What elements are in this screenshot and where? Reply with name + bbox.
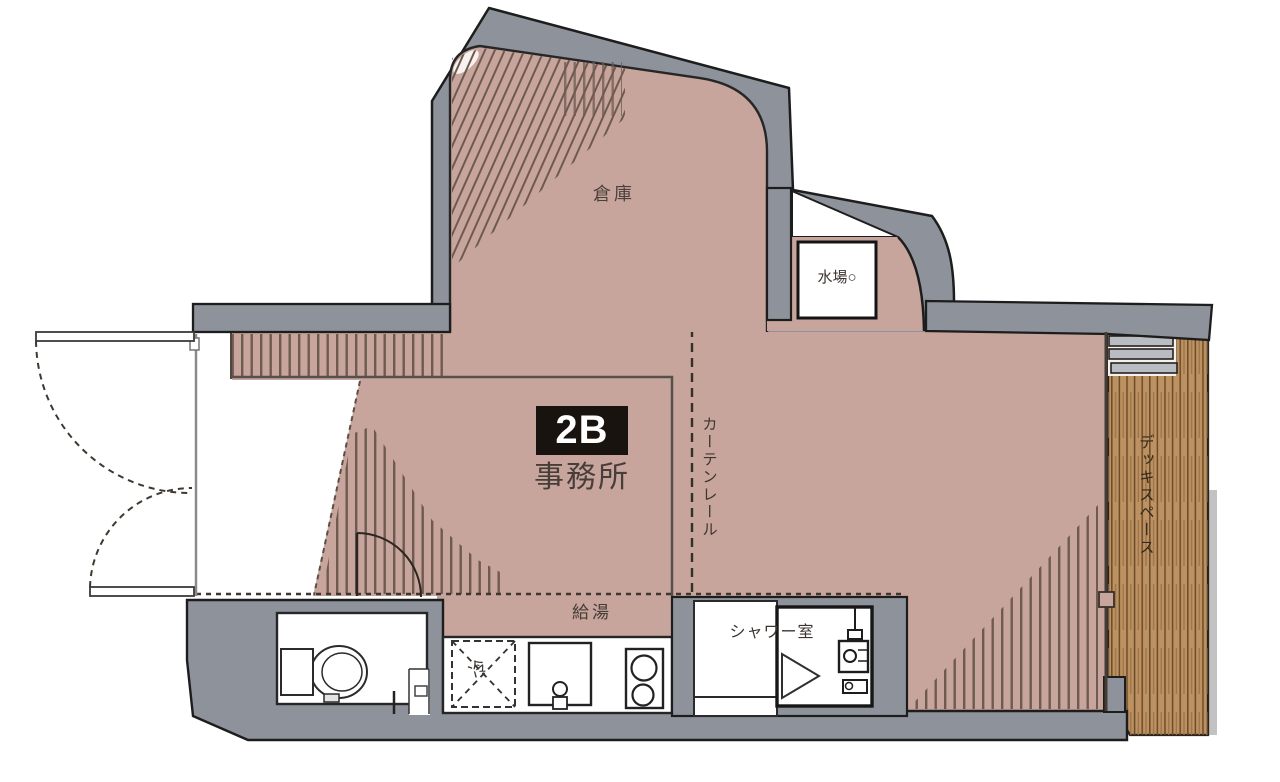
sink-icon bbox=[529, 643, 591, 709]
toilet-icon bbox=[281, 646, 367, 702]
door-swing-bottom bbox=[90, 488, 192, 587]
door-leaf-bottom bbox=[90, 587, 194, 596]
storage-label: 倉庫 bbox=[574, 184, 654, 205]
door-swing-top bbox=[36, 341, 190, 493]
hot-water-label: 給湯 bbox=[556, 603, 628, 623]
partition-wall bbox=[767, 188, 791, 320]
water-place-label: 水場○ bbox=[798, 269, 876, 286]
floor-plan: 倉庫 水場○ 2B 事務所 カーテンレール 給湯 シャワー室 冷 デッキスペース bbox=[0, 0, 1280, 782]
deck-steps-icon bbox=[1108, 334, 1177, 376]
unit-number-badge: 2B bbox=[536, 406, 628, 455]
entrance-lintel-wall bbox=[193, 304, 450, 332]
unit-use-label: 事務所 bbox=[518, 461, 646, 496]
shower-room-label: シャワー室 bbox=[714, 624, 830, 642]
deck-shadow bbox=[1208, 490, 1217, 735]
unit-number: 2B bbox=[555, 408, 608, 453]
deck-space-label: デッキスペース bbox=[1136, 434, 1154, 652]
stove-icon bbox=[626, 649, 663, 708]
entrance-doors bbox=[36, 332, 199, 596]
curtain-rail-label: カーテンレール bbox=[699, 416, 717, 581]
deck-door-icon bbox=[1099, 592, 1114, 607]
door-leaf-top bbox=[36, 332, 194, 341]
deck-space bbox=[1108, 330, 1217, 735]
shower-room bbox=[672, 597, 907, 716]
plan-canvas bbox=[0, 0, 1280, 782]
toilet-room bbox=[277, 613, 430, 715]
entry-hatch bbox=[231, 334, 446, 378]
